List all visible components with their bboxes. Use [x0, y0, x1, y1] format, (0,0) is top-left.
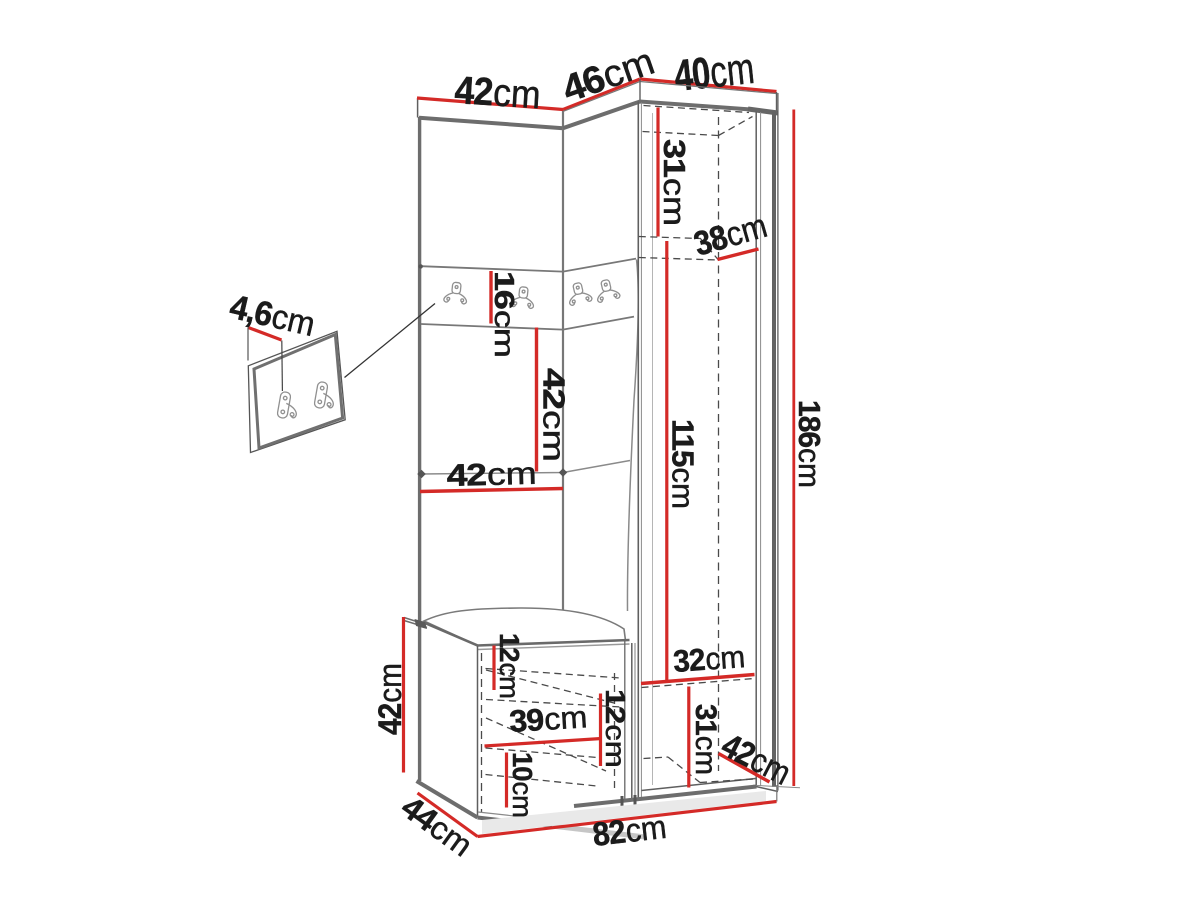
- svg-text:16cm: 16cm: [489, 271, 520, 358]
- svg-text:39cm: 39cm: [508, 699, 588, 739]
- svg-text:40cm: 40cm: [672, 44, 757, 101]
- svg-text:42cm: 42cm: [537, 368, 572, 462]
- svg-text:10cm: 10cm: [507, 752, 538, 818]
- svg-text:31cm: 31cm: [689, 704, 722, 775]
- svg-text:31cm: 31cm: [657, 139, 692, 226]
- svg-text:12cm: 12cm: [494, 633, 525, 699]
- svg-text:42cm: 42cm: [453, 69, 541, 117]
- svg-text:32cm: 32cm: [672, 639, 746, 679]
- svg-text:115cm: 115cm: [666, 419, 701, 509]
- svg-text:42cm: 42cm: [446, 456, 537, 493]
- svg-text:186cm: 186cm: [792, 400, 827, 488]
- svg-text:12cm: 12cm: [600, 689, 631, 768]
- svg-text:42cm: 42cm: [372, 663, 408, 735]
